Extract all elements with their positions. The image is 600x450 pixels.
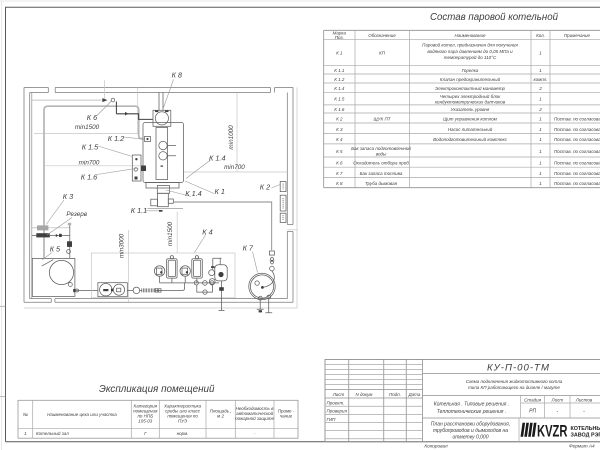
svg-text:Поз.: Поз. bbox=[335, 35, 344, 40]
svg-text:трубопроводов и дымоходов на: трубопроводов и дымоходов на bbox=[433, 428, 508, 434]
svg-text:1: 1 bbox=[539, 161, 542, 166]
svg-text:Котельная . Типовые решения .: Котельная . Типовые решения . bbox=[434, 402, 509, 408]
svg-text:К 6: К 6 bbox=[336, 161, 343, 166]
svg-text:KVZR: KVZR bbox=[537, 422, 568, 440]
svg-text:Труба дымовая: Труба дымовая bbox=[365, 181, 398, 186]
svg-text:Примечание: Примечание bbox=[564, 33, 590, 38]
svg-text:1: 1 bbox=[539, 137, 542, 142]
svg-text:План расстановки оборудования,: План расстановки оборудования, bbox=[431, 422, 510, 428]
svg-text:Проверил: Проверил bbox=[327, 409, 348, 414]
svg-text:К 5: К 5 bbox=[50, 245, 61, 254]
svg-text:Формат А4: Формат А4 bbox=[569, 444, 595, 449]
svg-text:Постав. по согласован: Постав. по согласован bbox=[554, 127, 600, 132]
svg-text:К 7: К 7 bbox=[243, 244, 254, 253]
svg-text:Подп.: Подп. bbox=[389, 392, 401, 397]
svg-text:К 1.2: К 1.2 bbox=[108, 134, 124, 143]
svg-text:Листов: Листов bbox=[575, 397, 593, 402]
svg-text:кондуктометрических датчиков: кондуктометрических датчиков bbox=[435, 100, 506, 105]
svg-text:Схема подключения жидкотопливн: Схема подключения жидкотопливного котла bbox=[466, 379, 563, 384]
svg-text:-: - bbox=[254, 431, 256, 436]
svg-text:КОТЕЛЬНЫЙ: КОТЕЛЬНЫЙ bbox=[571, 424, 600, 432]
svg-text:К 1: К 1 bbox=[336, 51, 343, 56]
svg-text:Состав паровой котельной: Состав паровой котельной bbox=[430, 12, 558, 23]
svg-text:Г: Г bbox=[144, 431, 147, 436]
svg-text:Постав. по согласован: Постав. по согласован bbox=[554, 181, 600, 186]
svg-text:Водоподготовительный комплекс: Водоподготовительный комплекс bbox=[433, 136, 508, 142]
svg-text:ЗАВОД РЭП: ЗАВОД РЭП bbox=[571, 433, 600, 439]
svg-text:Наименование: Наименование bbox=[454, 33, 486, 38]
svg-text:min1000: min1000 bbox=[228, 125, 235, 150]
svg-text:1: 1 bbox=[539, 68, 542, 73]
svg-text:Постав. по согласован: Постав. по согласован bbox=[554, 117, 600, 122]
svg-text:К 8: К 8 bbox=[336, 181, 343, 186]
svg-text:К 1.1: К 1.1 bbox=[334, 68, 345, 73]
svg-text:min700: min700 bbox=[79, 159, 100, 166]
svg-text:К 1: К 1 bbox=[215, 187, 225, 196]
svg-text:Экспликация помещений: Экспликация помещений bbox=[99, 384, 215, 395]
svg-text:-: - bbox=[556, 409, 558, 415]
svg-text:Обозначение: Обозначение bbox=[368, 33, 396, 38]
svg-text:N докум: N докум bbox=[356, 392, 373, 397]
svg-text:м 2: м 2 bbox=[217, 414, 224, 419]
svg-text:К 1.1: К 1.1 bbox=[131, 206, 147, 215]
svg-text:Дата: Дата bbox=[407, 392, 420, 397]
svg-text:К 4: К 4 bbox=[336, 137, 343, 142]
svg-text:Бак запаса подготовленной: Бак запаса подготовленной bbox=[351, 145, 411, 151]
svg-text:К 1.5: К 1.5 bbox=[82, 143, 99, 152]
svg-text:К 1.2: К 1.2 bbox=[334, 77, 345, 82]
svg-text:2: 2 bbox=[538, 107, 542, 112]
svg-text:К 1.4: К 1.4 bbox=[209, 154, 225, 163]
svg-text:К 1.6: К 1.6 bbox=[81, 173, 98, 182]
svg-text:Постав. по согласован: Постав. по согласован bbox=[554, 161, 600, 166]
svg-text:2: 2 bbox=[538, 86, 542, 91]
svg-text:Наименование цеха или участка: Наименование цеха или участка bbox=[47, 412, 117, 417]
svg-text:Резерв: Резерв bbox=[66, 211, 87, 218]
svg-text:типа КП работающего на дизеле: типа КП работающего на дизеле / мазуте bbox=[468, 385, 560, 390]
svg-text:Постав. по согласован: Постав. по согласован bbox=[554, 137, 600, 142]
svg-text:Охладитель отбора проб: Охладитель отбора проб bbox=[353, 161, 409, 166]
svg-text:Лист: Лист bbox=[332, 392, 345, 397]
svg-text:Паровой котел, предназначен дл: Паровой котел, предназначен для получени… bbox=[422, 42, 518, 48]
svg-text:чание: чание bbox=[280, 414, 293, 419]
svg-text:Электроконтактный манометр: Электроконтактный манометр bbox=[435, 85, 506, 91]
svg-text:1: 1 bbox=[24, 431, 27, 436]
svg-text:К 6: К 6 bbox=[87, 113, 98, 122]
svg-text:1: 1 bbox=[539, 51, 542, 56]
svg-text:температурой до 110°С: температурой до 110°С bbox=[444, 54, 497, 60]
svg-text:1: 1 bbox=[539, 149, 542, 154]
svg-text:№: № bbox=[23, 412, 28, 417]
svg-text:Лист: Лист bbox=[551, 397, 564, 402]
svg-text:отметку 0,000: отметку 0,000 bbox=[453, 435, 489, 441]
svg-text:Щит управления котлом: Щит управления котлом bbox=[443, 117, 497, 122]
svg-text:ГИП: ГИП bbox=[327, 417, 337, 422]
svg-text:1: 1 bbox=[539, 117, 542, 122]
svg-text:ЩУК ПТ: ЩУК ПТ bbox=[374, 117, 392, 122]
svg-text:Четырех электродный блок: Четырех электродный блок bbox=[440, 93, 501, 99]
svg-text:компл.: компл. bbox=[534, 77, 548, 82]
svg-text:К 1.6: К 1.6 bbox=[334, 107, 345, 112]
svg-text:1: 1 bbox=[539, 97, 542, 102]
svg-text:воды: воды bbox=[376, 152, 387, 157]
svg-text:Стадия: Стадия bbox=[524, 397, 541, 402]
svg-text:1: 1 bbox=[539, 127, 542, 132]
svg-text:Бак запаса топлива: Бак запаса топлива bbox=[360, 171, 403, 176]
svg-text:Котельный зал: Котельный зал bbox=[36, 430, 69, 436]
svg-text:пожарной защите: пожарной защите bbox=[235, 415, 274, 421]
svg-text:min700: min700 bbox=[224, 164, 245, 171]
svg-text:К 7: К 7 bbox=[336, 171, 343, 176]
svg-text:К 5: К 5 bbox=[336, 149, 343, 154]
svg-text:Кол.: Кол. bbox=[536, 33, 545, 38]
svg-text:min3000: min3000 bbox=[119, 233, 126, 258]
svg-text:min1500: min1500 bbox=[75, 124, 100, 131]
svg-text:1: 1 bbox=[539, 171, 542, 176]
svg-text:Теплотехнические решения .: Теплотехнические решения . bbox=[437, 409, 506, 415]
svg-text:1: 1 bbox=[539, 181, 542, 186]
svg-text:КП: КП bbox=[379, 51, 386, 56]
svg-text:КУ-П-00-ТМ: КУ-П-00-ТМ bbox=[487, 363, 550, 374]
svg-text:Горелка: Горелка bbox=[462, 68, 479, 73]
svg-text:min1500: min1500 bbox=[167, 221, 174, 246]
svg-text:К 8: К 8 bbox=[172, 71, 183, 80]
svg-text:Постав. по согласован: Постав. по согласован bbox=[554, 149, 600, 154]
svg-text:Указатель уровня: Указатель уровня bbox=[451, 107, 490, 112]
svg-text:Постав. по согласован: Постав. по согласован bbox=[554, 171, 600, 176]
svg-text:К 4: К 4 bbox=[202, 228, 212, 237]
svg-text:105-03: 105-03 bbox=[138, 419, 153, 424]
svg-text:Проект.: Проект. bbox=[327, 401, 345, 406]
svg-text:К 1.5: К 1.5 bbox=[334, 97, 345, 102]
svg-text:К 3: К 3 bbox=[336, 127, 343, 132]
svg-text:Копировал: Копировал bbox=[424, 444, 448, 449]
svg-text:ПУЭ: ПУЭ bbox=[178, 419, 187, 424]
svg-text:-: - bbox=[583, 409, 585, 415]
svg-text:РП: РП bbox=[529, 409, 536, 415]
svg-text:К 1.4: К 1.4 bbox=[334, 86, 345, 91]
svg-text:Насос питательный: Насос питательный bbox=[448, 126, 493, 132]
svg-text:Клапан предохранительный: Клапан предохранительный bbox=[440, 76, 501, 82]
svg-text:К 2: К 2 bbox=[336, 117, 343, 122]
svg-text:К 3: К 3 bbox=[63, 192, 73, 201]
svg-text:К 1.4: К 1.4 bbox=[185, 189, 201, 198]
svg-text:водяного пара давлением до 0,0: водяного пара давлением до 0,05 МПа и bbox=[427, 49, 513, 54]
svg-text:К 2: К 2 bbox=[260, 183, 270, 192]
svg-text:норм.: норм. bbox=[177, 431, 189, 436]
